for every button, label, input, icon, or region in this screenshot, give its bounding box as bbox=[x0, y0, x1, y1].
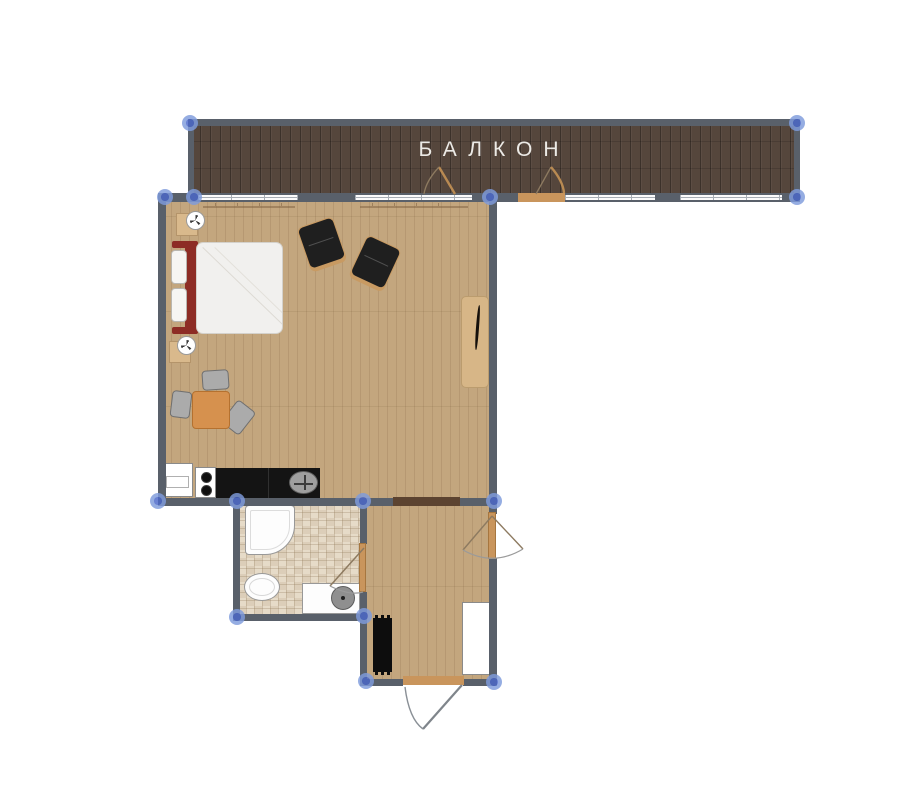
bathroom-door-open-line bbox=[330, 548, 364, 586]
corner-handle[interactable] bbox=[358, 673, 374, 689]
corner-handle[interactable] bbox=[229, 609, 245, 625]
corner-handle[interactable] bbox=[482, 189, 498, 205]
balcony-door-leaf-line bbox=[536, 167, 551, 194]
entry-door-leaf-line bbox=[423, 685, 462, 729]
hall-door-arc bbox=[463, 549, 523, 558]
entry-door-arc bbox=[405, 687, 423, 729]
corner-handle[interactable] bbox=[150, 493, 166, 509]
corner-handle[interactable] bbox=[486, 674, 502, 690]
corner-handle[interactable] bbox=[355, 493, 371, 509]
floor-plan-canvas: БАЛКОН bbox=[0, 0, 898, 810]
door-swings-layer bbox=[0, 0, 898, 810]
hall-door-open-line bbox=[492, 516, 523, 549]
balcony-door-arc bbox=[551, 167, 564, 193]
corner-handle[interactable] bbox=[229, 493, 245, 509]
corner-handle[interactable] bbox=[186, 189, 202, 205]
corner-handle[interactable] bbox=[182, 115, 198, 131]
corner-handle[interactable] bbox=[789, 115, 805, 131]
corner-handle[interactable] bbox=[356, 608, 372, 624]
balcony-door-leaf-line bbox=[439, 167, 455, 194]
corner-handle[interactable] bbox=[157, 189, 173, 205]
corner-handle[interactable] bbox=[486, 493, 502, 509]
balcony-door-arc bbox=[424, 167, 439, 194]
corner-handle[interactable] bbox=[789, 189, 805, 205]
hall-door-open-line bbox=[463, 516, 492, 550]
bathroom-door-arc bbox=[330, 586, 363, 593]
